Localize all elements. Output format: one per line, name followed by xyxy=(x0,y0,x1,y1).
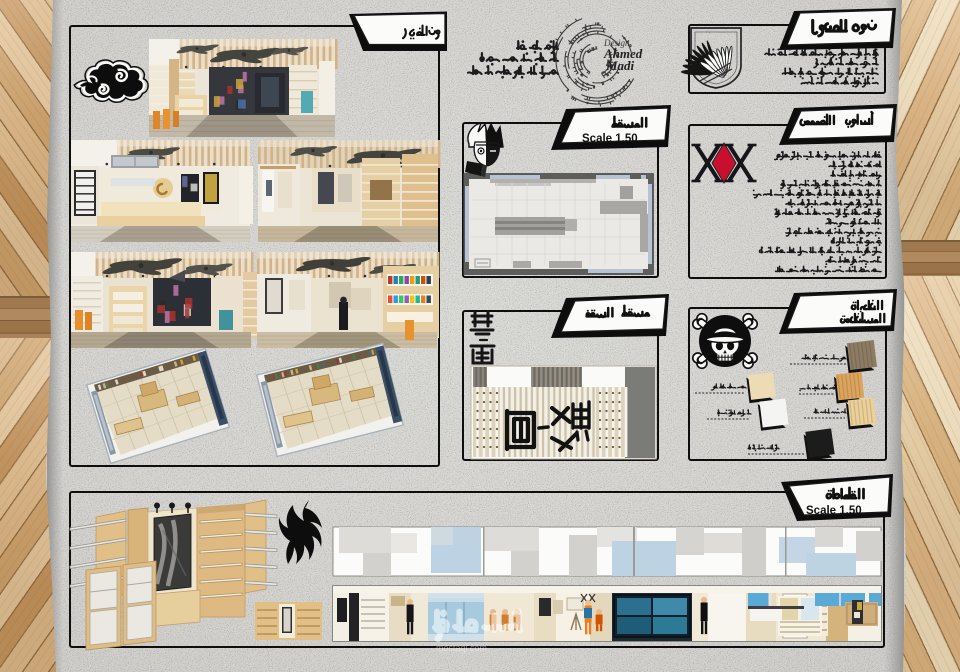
svg-text:Madi: Madi xyxy=(605,58,635,73)
svg-text:Scale 1.50: Scale 1.50 xyxy=(806,505,862,517)
svg-text:Scale 1.50: Scale 1.50 xyxy=(582,133,638,145)
svg-text:mostaql com: mostaql com xyxy=(436,643,487,653)
